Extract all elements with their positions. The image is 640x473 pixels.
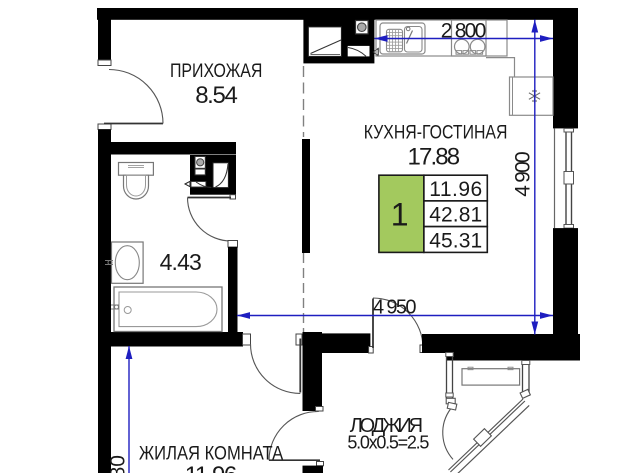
svg-text:11.96: 11.96 [429,178,482,201]
svg-text:3 080: 3 080 [107,455,130,473]
svg-text:4.43: 4.43 [160,249,202,275]
svg-text:ПРИХОЖАЯ: ПРИХОЖАЯ [170,60,263,82]
svg-text:5.0х0.5=2.5: 5.0х0.5=2.5 [347,433,429,453]
svg-text:8.54: 8.54 [195,82,238,109]
svg-text:4 950: 4 950 [373,296,417,318]
svg-text:2 800: 2 800 [441,19,487,42]
svg-text:4 900: 4 900 [512,151,535,197]
svg-text:11.96: 11.96 [185,462,238,473]
svg-text:42.81: 42.81 [429,204,482,227]
svg-text:КУХНЯ-ГОСТИНАЯ: КУХНЯ-ГОСТИНАЯ [364,121,508,143]
svg-text:17.88: 17.88 [408,144,461,171]
svg-text:1: 1 [391,197,409,233]
svg-text:45.31: 45.31 [429,229,482,252]
